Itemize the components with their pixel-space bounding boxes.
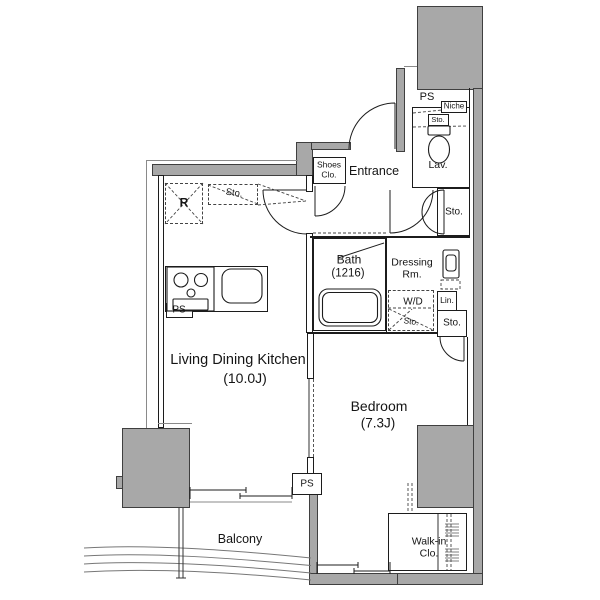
balcony-edge-line-4	[84, 570, 311, 580]
room-label-entrance: Entrance	[349, 164, 399, 178]
shoes-line2: Clo.	[317, 170, 341, 180]
label-storage-bedroom: Sto.	[443, 317, 461, 328]
door-arc-storage-bedroom	[440, 337, 464, 361]
door-arc-ldk	[263, 190, 307, 234]
label-storage-kitchen: Sto.	[225, 188, 243, 201]
room-size-bedroom: (7.3J)	[361, 415, 396, 430]
label-walk-in-closet: Walk-in Clo.	[412, 536, 447, 560]
room-label-balcony: Balcony	[218, 532, 262, 546]
label-shoes-closet: Shoes Clo.	[317, 160, 341, 179]
line-pillar-top	[158, 423, 192, 424]
label-ps-kitchen: PS	[172, 304, 185, 315]
room-label-lavatory: Lav.	[428, 160, 447, 172]
label-washer-dryer: W/D	[403, 296, 422, 307]
label-linen: Lin.	[440, 296, 454, 306]
wall-bedroom-north	[313, 332, 439, 334]
walkin-line1: Walk-in	[412, 536, 447, 548]
label-ps-top: PS	[420, 91, 435, 103]
wall-pillar-notch	[116, 476, 123, 489]
label-niche: Niche	[444, 103, 464, 112]
wall-ps-band	[309, 494, 318, 585]
wall-partition-upper	[307, 333, 314, 379]
door-arc-shoes	[315, 186, 345, 216]
walkin-line2: Clo.	[412, 548, 447, 560]
door-arc-entrance	[349, 103, 395, 149]
balcony-edge-line-2	[84, 555, 311, 566]
label-refrigerator: R	[180, 196, 189, 209]
wall-entrance-east	[396, 68, 405, 152]
wall-bottom-right	[396, 573, 483, 585]
dressing-line2: Rm.	[391, 269, 432, 281]
wall-lav-inner	[469, 88, 470, 107]
outline-top-right	[404, 66, 417, 67]
label-ps-bottom: PS	[300, 478, 313, 489]
label-storage-hall: Sto.	[445, 206, 463, 217]
room-size-bath: (1216)	[331, 268, 364, 281]
wall-right-band	[473, 88, 483, 585]
basin-dashed	[441, 280, 460, 289]
wall-dressing-west	[386, 237, 387, 332]
wall-bedroom-east	[467, 337, 468, 425]
wall-ldk-north	[152, 164, 298, 176]
door-arc-hall	[390, 190, 433, 233]
washbasin-inner	[446, 255, 456, 271]
room-label-ldk: Living Dining Kitchen	[170, 352, 305, 368]
label-storage-laundry: Sto.	[403, 316, 419, 328]
balcony-edge-line-1	[84, 547, 311, 558]
floorplan: Living Dining Kitchen (10.0J) Bedroom (7…	[0, 0, 600, 600]
label-storage-toilet: Sto.	[431, 116, 444, 124]
wall-bedroom-block	[417, 425, 474, 508]
wall-entrance-north	[311, 142, 351, 150]
walkin-passage	[408, 483, 412, 511]
room-label-bedroom: Bedroom	[351, 399, 408, 415]
wall-partition-lower	[307, 457, 314, 474]
window-ldk-south	[190, 487, 292, 499]
room-label-bath: Bath	[337, 253, 362, 266]
wall-pillar	[122, 428, 190, 508]
wall-top-right-block	[417, 6, 483, 90]
balcony-edge-line-3	[84, 563, 311, 573]
dressing-line1: Dressing	[391, 257, 432, 269]
washbasin-fixture	[443, 250, 459, 278]
balcony-partition	[176, 508, 186, 578]
outline-top	[146, 160, 298, 161]
room-label-dressing: Dressing Rm.	[391, 257, 432, 281]
room-size-ldk: (10.0J)	[223, 371, 267, 387]
wall-hall-west-upper	[306, 175, 313, 192]
wall-ldk-west	[158, 175, 164, 428]
outline-left	[146, 160, 147, 428]
wall-bottom-center	[309, 573, 398, 585]
floorplan-lines	[0, 0, 600, 600]
wall-hall-west-lower	[306, 233, 313, 333]
